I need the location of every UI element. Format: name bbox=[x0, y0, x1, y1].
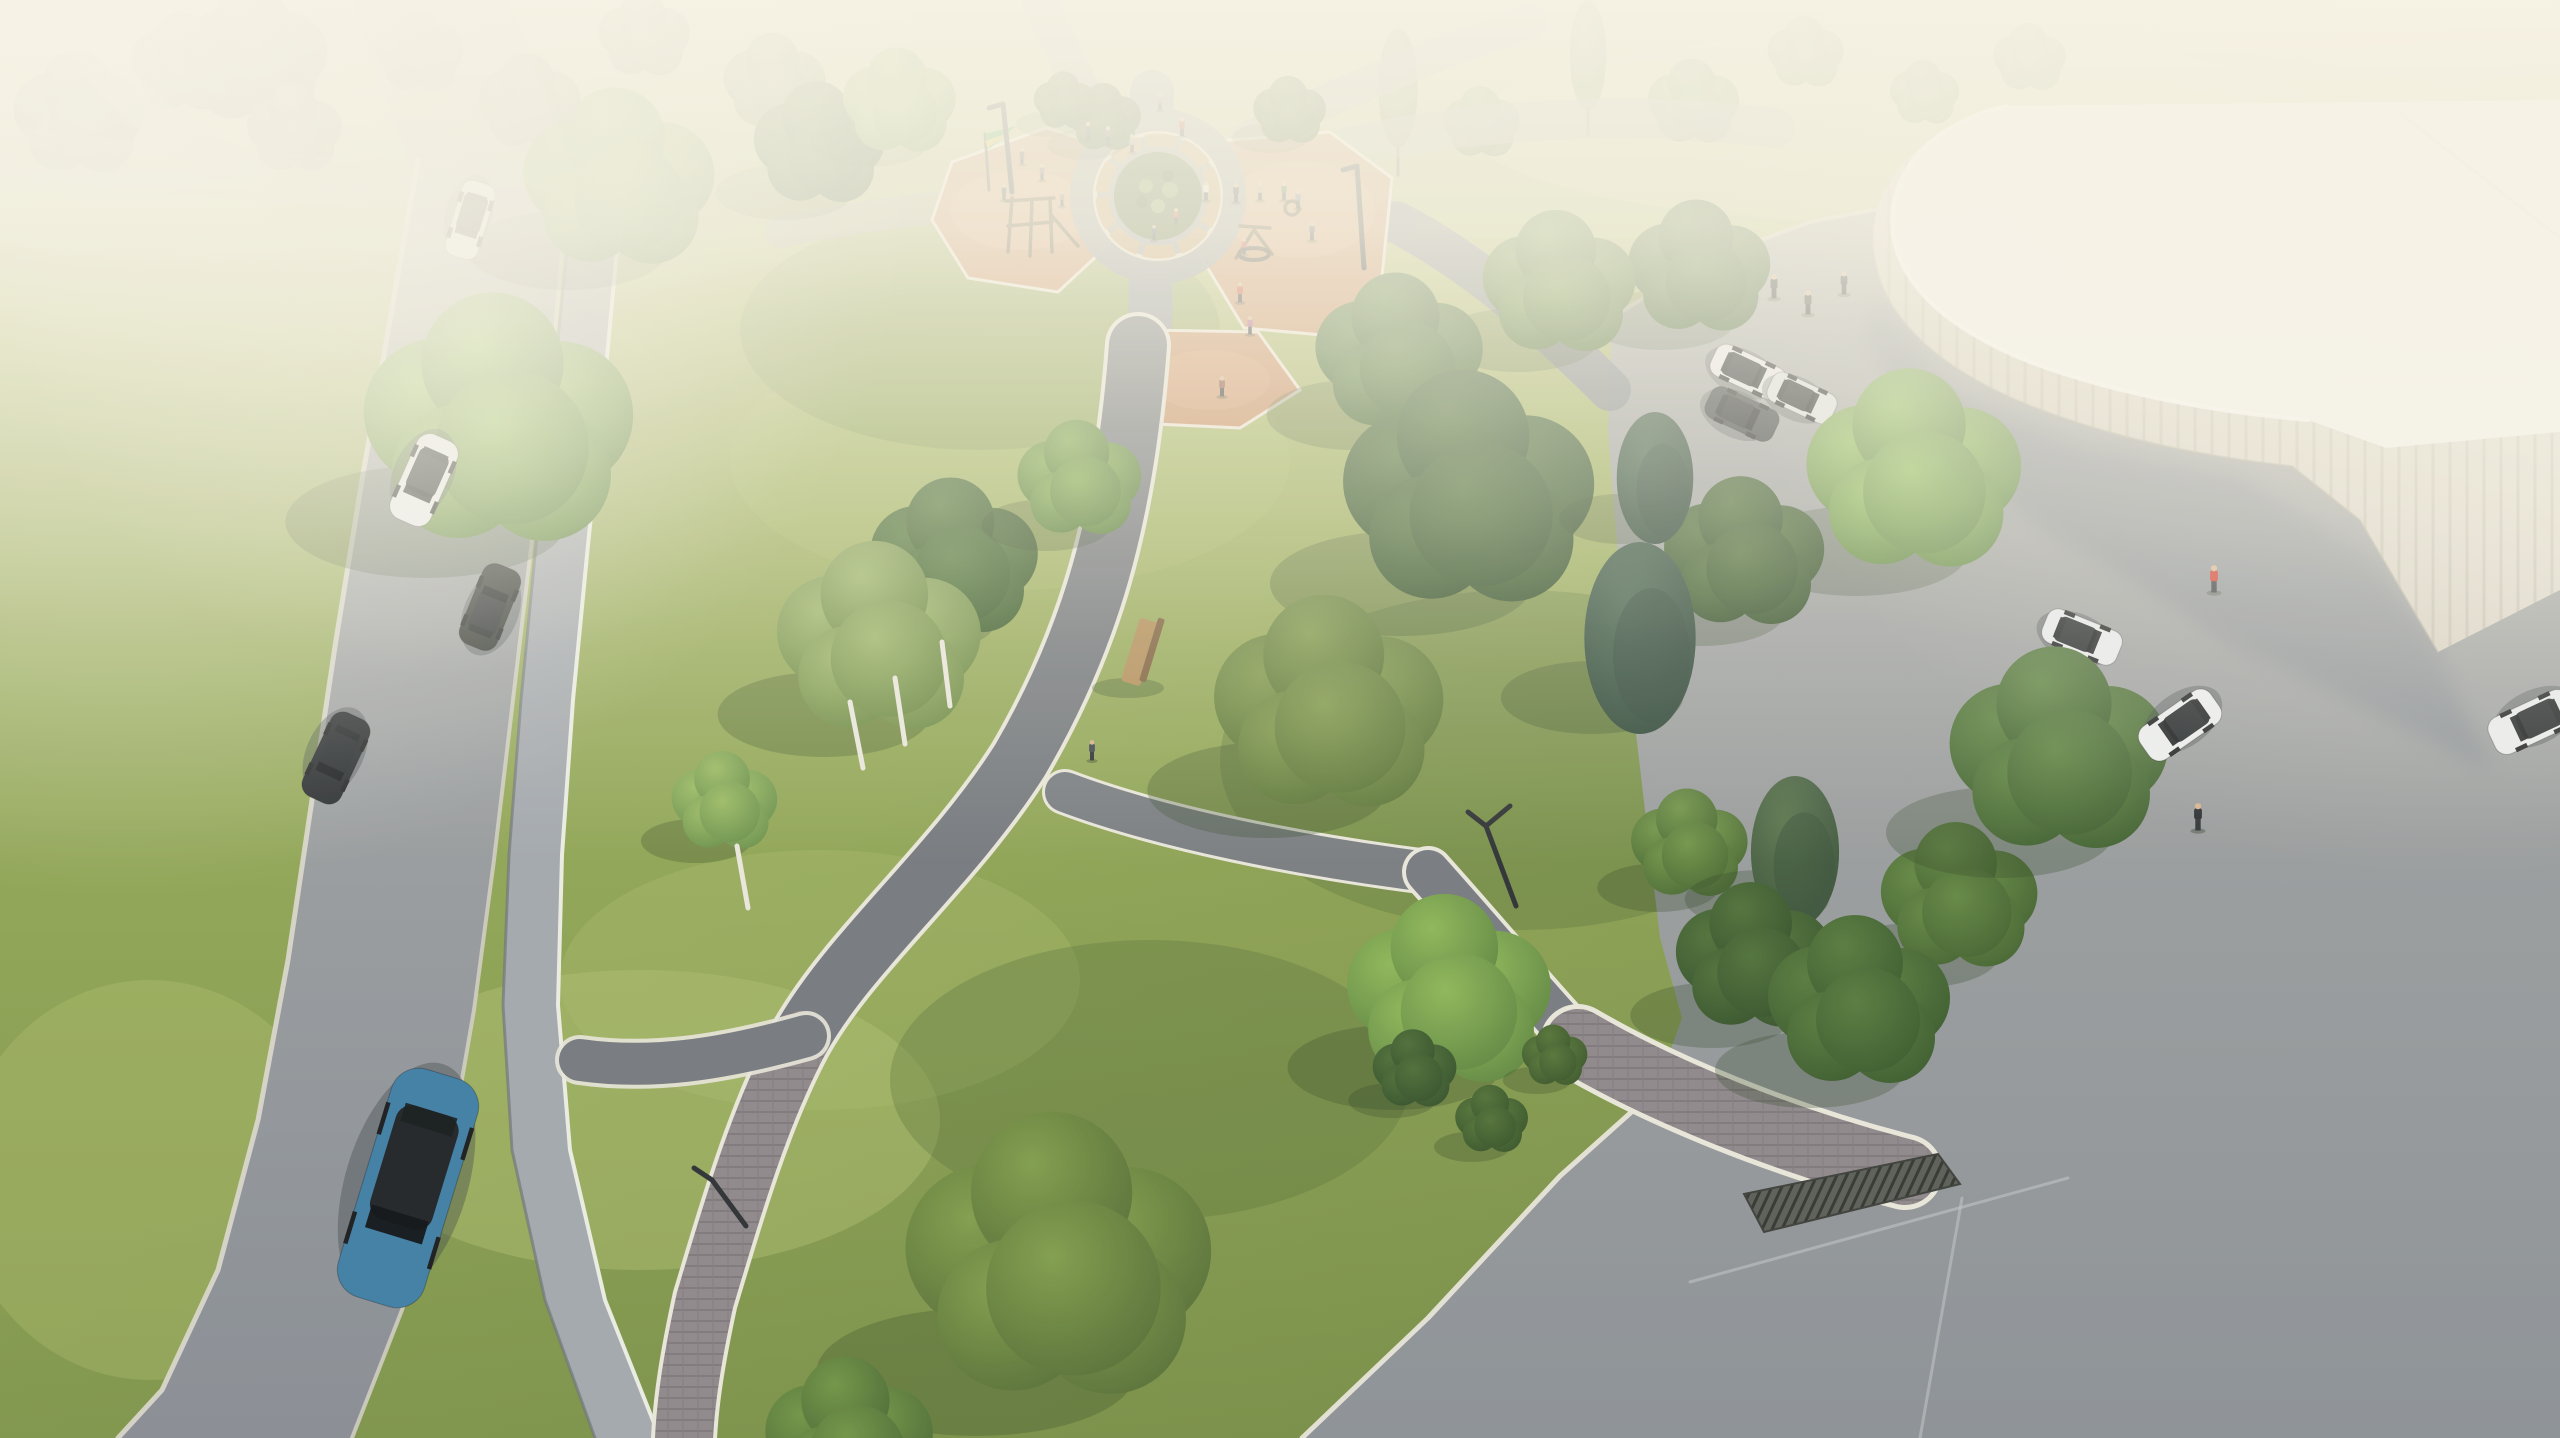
warm-tint bbox=[0, 0, 2560, 1438]
scene-render bbox=[0, 0, 2560, 1438]
park-rendering bbox=[0, 0, 2560, 1438]
render-layers bbox=[0, 0, 2560, 1438]
